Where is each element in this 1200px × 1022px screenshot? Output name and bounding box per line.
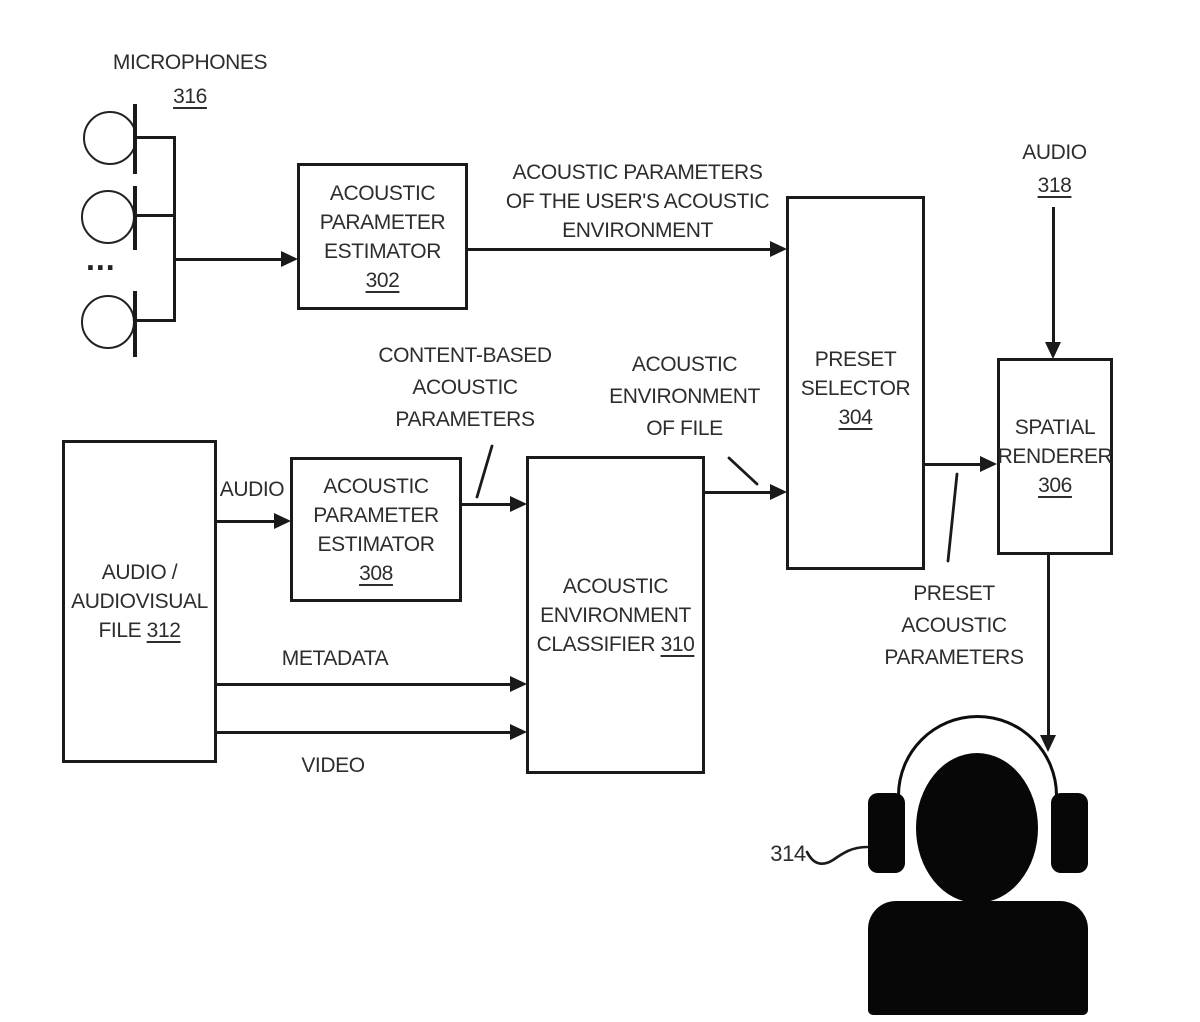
node-acoustic-environment-classifier-310: ACOUSTIC ENVIRONMENT CLASSIFIER 310 bbox=[526, 456, 705, 774]
arrowhead-icon bbox=[1045, 342, 1061, 359]
node-preset-selector-304: PRESET SELECTOR 304 bbox=[786, 196, 925, 570]
node-302-line2: PARAMETER bbox=[320, 208, 446, 237]
mic-connector-line bbox=[136, 136, 175, 139]
node-312-ref: 312 bbox=[147, 619, 181, 642]
node-acoustic-parameter-estimator-308: ACOUSTIC PARAMETER ESTIMATOR 308 bbox=[290, 457, 462, 602]
microphones-ellipsis: ... bbox=[86, 244, 116, 274]
mic-connector-line bbox=[136, 319, 175, 322]
node-acoustic-parameter-estimator-302: ACOUSTIC PARAMETER ESTIMATOR 302 bbox=[297, 163, 468, 310]
node-312-file-text: FILE bbox=[98, 619, 141, 642]
arrowhead-icon bbox=[980, 456, 997, 472]
arrow-audio-to-306 bbox=[1052, 207, 1055, 344]
node-308-line3: ESTIMATOR bbox=[318, 530, 435, 559]
arrow-308-to-310 bbox=[462, 503, 512, 506]
audio-318-text: AUDIO bbox=[1002, 136, 1107, 169]
arrow-mics-to-302 bbox=[175, 258, 283, 261]
arrow-310-to-304 bbox=[705, 491, 773, 494]
node-304-line1: PRESET bbox=[815, 345, 897, 374]
node-310-classifier-text: CLASSIFIER bbox=[537, 633, 656, 656]
microphones-label-text: MICROPHONES bbox=[95, 46, 285, 80]
label-user-env-line3: ENVIRONMENT bbox=[500, 216, 775, 245]
mic-connector-line bbox=[136, 214, 175, 217]
label-preset-acoustic-parameters: PRESET ACOUSTIC PARAMETERS bbox=[850, 578, 1058, 674]
headphone-earcup-right-icon bbox=[1051, 793, 1088, 873]
microphone-icon bbox=[81, 295, 135, 349]
node-304-ref: 304 bbox=[839, 403, 873, 432]
label-preset-params-line2: ACOUSTIC bbox=[850, 610, 1058, 642]
node-302-ref: 302 bbox=[366, 266, 400, 295]
node-audio-audiovisual-file-312: AUDIO / AUDIOVISUAL FILE 312 bbox=[62, 440, 217, 763]
arrow-312-to-308 bbox=[217, 520, 276, 523]
label-env-of-file-line1: ACOUSTIC bbox=[582, 349, 787, 381]
headphone-earcup-left-icon bbox=[868, 793, 905, 873]
label-content-based-line1: CONTENT-BASED bbox=[360, 340, 570, 372]
label-content-based-line3: PARAMETERS bbox=[360, 404, 570, 436]
node-312-line1: AUDIO / bbox=[102, 558, 177, 587]
label-video-edge: VIDEO bbox=[291, 750, 375, 781]
callout-content-based-line bbox=[477, 446, 492, 497]
mic-bus-line bbox=[173, 136, 176, 322]
callout-preset-params-line bbox=[948, 474, 957, 561]
label-acoustic-environment-of-file: ACOUSTIC ENVIRONMENT OF FILE bbox=[582, 349, 787, 445]
label-user-environment-params: ACOUSTIC PARAMETERS OF THE USER'S ACOUST… bbox=[500, 158, 775, 245]
arrow-312-video-to-310 bbox=[217, 731, 513, 734]
audio-318-ref: 318 bbox=[1002, 169, 1107, 202]
arrow-304-to-306 bbox=[925, 463, 983, 466]
label-content-based-line2: ACOUSTIC bbox=[360, 372, 570, 404]
node-310-line3: CLASSIFIER 310 bbox=[537, 630, 695, 659]
callout-314-squiggle-line bbox=[807, 847, 867, 864]
label-audio-edge: AUDIO bbox=[210, 474, 294, 505]
node-308-line2: PARAMETER bbox=[313, 501, 439, 530]
label-preset-params-line1: PRESET bbox=[850, 578, 1058, 610]
node-306-ref: 306 bbox=[1038, 471, 1072, 500]
node-312-line3: FILE 312 bbox=[98, 616, 180, 645]
arrowhead-icon bbox=[770, 484, 787, 500]
node-310-ref: 310 bbox=[661, 633, 695, 656]
callout-env-of-file-line bbox=[729, 458, 757, 484]
microphones-label: MICROPHONES 316 bbox=[95, 46, 285, 114]
node-312-line2: AUDIOVISUAL bbox=[71, 587, 208, 616]
microphone-icon bbox=[83, 111, 137, 165]
listener-body-icon bbox=[868, 901, 1088, 1015]
arrowhead-icon bbox=[510, 496, 527, 512]
label-audio-318: AUDIO 318 bbox=[1002, 136, 1107, 202]
microphone-element-bar bbox=[133, 186, 137, 250]
node-304-line2: SELECTOR bbox=[801, 374, 911, 403]
arrow-312-metadata-to-310 bbox=[217, 683, 513, 686]
node-306-line2: RENDERER bbox=[998, 442, 1113, 471]
patent-diagram: MICROPHONES 316 ... ACOUSTIC PARAMETER E… bbox=[0, 0, 1200, 1022]
arrow-306-to-listener bbox=[1047, 555, 1050, 737]
microphones-ref: 316 bbox=[95, 80, 285, 114]
label-env-of-file-line3: OF FILE bbox=[582, 413, 787, 445]
listener-ref-label: 314 bbox=[764, 838, 812, 869]
arrowhead-icon bbox=[510, 724, 527, 740]
microphone-icon bbox=[81, 190, 135, 244]
node-302-line1: ACOUSTIC bbox=[330, 179, 435, 208]
node-308-line1: ACOUSTIC bbox=[323, 472, 428, 501]
node-spatial-renderer-306: SPATIAL RENDERER 306 bbox=[997, 358, 1113, 555]
node-302-line3: ESTIMATOR bbox=[324, 237, 441, 266]
label-env-of-file-line2: ENVIRONMENT bbox=[582, 381, 787, 413]
node-308-ref: 308 bbox=[359, 559, 393, 588]
arrowhead-icon bbox=[281, 251, 298, 267]
listener-head-icon bbox=[916, 753, 1038, 903]
node-310-line2: ENVIRONMENT bbox=[540, 601, 691, 630]
arrowhead-icon bbox=[274, 513, 291, 529]
microphone-element-bar bbox=[133, 104, 137, 174]
label-preset-params-line3: PARAMETERS bbox=[850, 642, 1058, 674]
label-user-env-line2: OF THE USER'S ACOUSTIC bbox=[500, 187, 775, 216]
node-306-line1: SPATIAL bbox=[1015, 413, 1095, 442]
label-metadata-edge: METADATA bbox=[277, 643, 393, 674]
arrow-302-to-304 bbox=[468, 248, 773, 251]
node-310-line1: ACOUSTIC bbox=[563, 572, 668, 601]
arrowhead-icon bbox=[510, 676, 527, 692]
microphone-element-bar bbox=[133, 291, 137, 357]
label-content-based-params: CONTENT-BASED ACOUSTIC PARAMETERS bbox=[360, 340, 570, 436]
label-user-env-line1: ACOUSTIC PARAMETERS bbox=[500, 158, 775, 187]
